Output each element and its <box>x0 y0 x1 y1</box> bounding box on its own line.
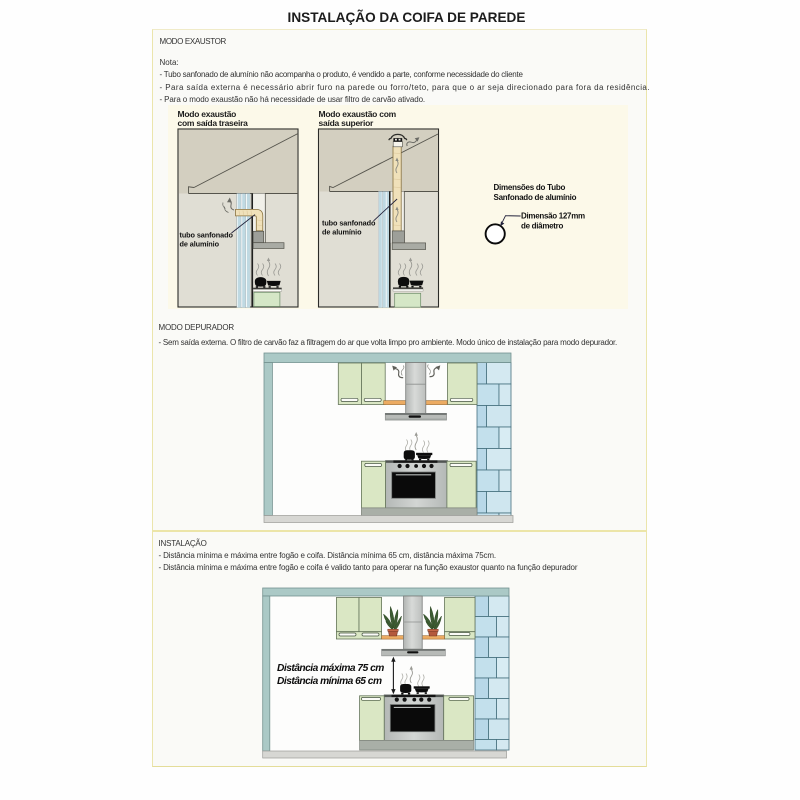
svg-text:Sanfonado de alumínio: Sanfonado de alumínio <box>494 193 577 202</box>
svg-text:Distância mínima 65 cm: Distância mínima 65 cm <box>277 676 382 687</box>
svg-text:Distância máxima 75 cm: Distância máxima 75 cm <box>277 663 384 674</box>
svg-text:Dimensões do Tubo: Dimensões do Tubo <box>494 183 566 192</box>
svg-text:Dimensão 127mm: Dimensão 127mm <box>521 211 585 220</box>
svg-text:de alumínio: de alumínio <box>180 240 220 249</box>
svg-text:tubo sanfonado: tubo sanfonado <box>180 231 234 240</box>
svg-text:de alumínio: de alumínio <box>322 228 362 237</box>
svg-text:de diâmetro: de diâmetro <box>521 221 563 230</box>
svg-text:tubo sanfonado: tubo sanfonado <box>322 219 376 228</box>
